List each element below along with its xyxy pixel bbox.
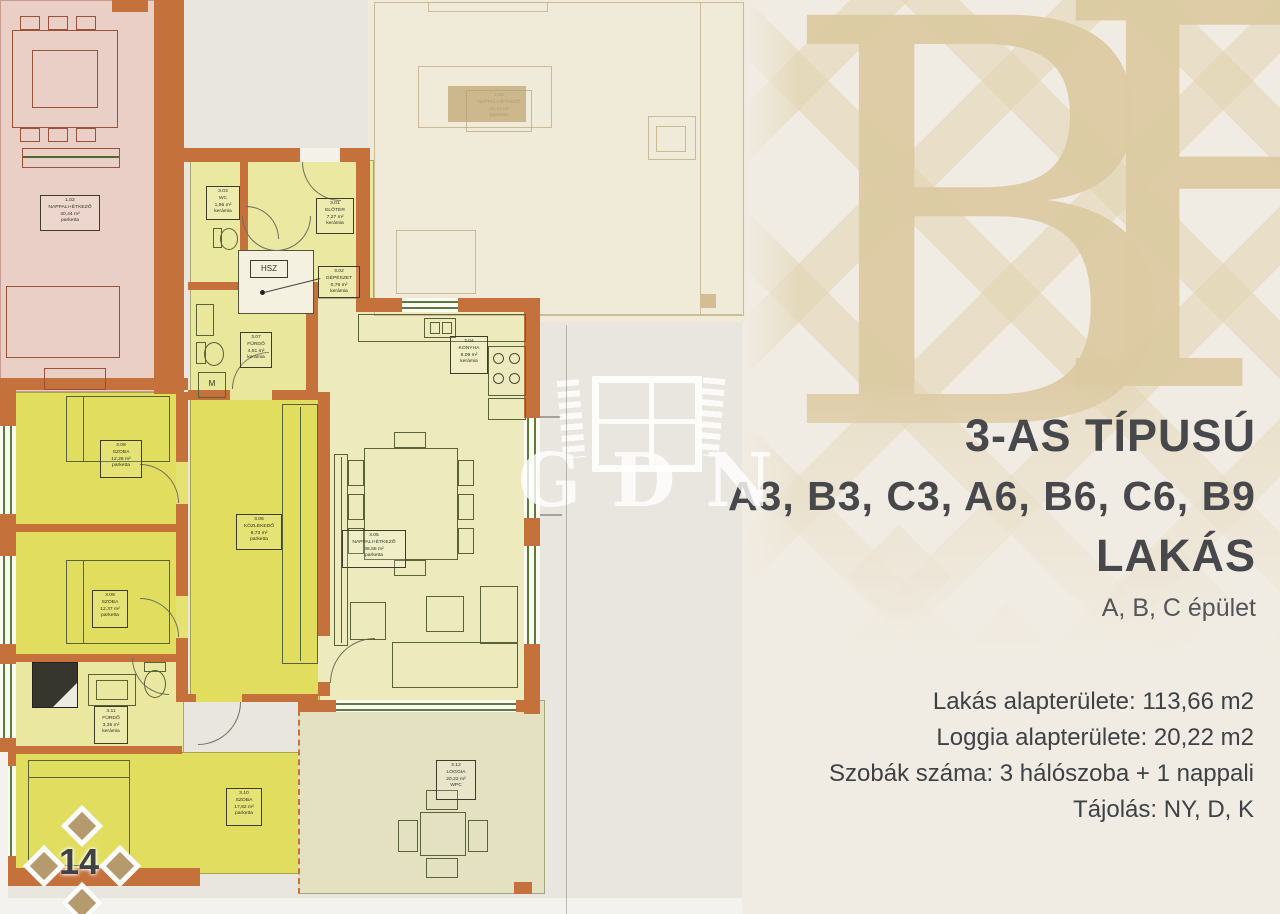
- room-label: 3.05NAPPALI+ÉTKEZŐ36,55 m²parketta: [342, 530, 406, 568]
- chair: [20, 128, 40, 142]
- chair: [458, 528, 474, 554]
- window-mullion: [599, 419, 695, 424]
- room-label: 3.02GÉPÉSZET0,76 m²kerámia: [318, 266, 360, 298]
- burner-icon: [493, 353, 504, 364]
- room-label: 3.01ELŐTÉR7,27 m²kerámia: [316, 198, 354, 234]
- chair: [20, 16, 40, 30]
- window-sill-line: [540, 416, 562, 418]
- sink-basin: [430, 322, 440, 334]
- sink-basin: [96, 680, 128, 700]
- room-label: 3.06KÖZLEKEDŐ8,73 m²parketta: [236, 514, 282, 550]
- bathroom-sink: [196, 304, 214, 336]
- burner-icon: [509, 353, 520, 364]
- armchair: [350, 602, 386, 640]
- faded-wall-line: [700, 2, 701, 314]
- gdn-watermark: GDN: [518, 438, 803, 524]
- wall-segment: [112, 0, 148, 12]
- loggia-sliding-door: [336, 700, 516, 712]
- shower: [32, 662, 78, 708]
- chair: [348, 460, 364, 486]
- adjacent-sofa: [6, 286, 120, 358]
- bedroom2-window: [0, 556, 16, 644]
- cooktop: [488, 346, 526, 396]
- room-loggia: [298, 700, 545, 894]
- page-margin: [0, 898, 742, 914]
- chair: [426, 858, 458, 878]
- room-label: 3.12LOGGIA20,22 m²WPC: [436, 760, 476, 800]
- door-gap: [196, 694, 242, 702]
- chair: [48, 16, 68, 30]
- page-margin: [0, 752, 8, 914]
- detail-loggia-area: Loggia alapterülete: 20,22 m2: [634, 720, 1254, 756]
- chair: [48, 128, 68, 142]
- loggia-table: [420, 812, 466, 856]
- detail-rooms-count: Szobák száma: 3 hálószoba + 1 nappali: [634, 756, 1254, 792]
- faded-room-label: 2.02 NAPPALI+ÉTKEZŐ 42,43 m² parketta: [466, 90, 532, 132]
- chair: [458, 494, 474, 520]
- sofa-corner: [480, 586, 518, 644]
- type-label: LAKÁS: [576, 526, 1256, 586]
- adjacent-cabinet: [44, 368, 106, 390]
- faded-room-box: [656, 126, 686, 152]
- room-label: 3.08SZOBA12,26 m²parketta: [100, 440, 142, 478]
- diamond-ornament: [61, 882, 103, 914]
- page-number: 14: [59, 841, 99, 883]
- wall-segment: [184, 148, 370, 162]
- sofa: [392, 642, 518, 688]
- door-arc: [198, 702, 241, 745]
- chair: [76, 16, 96, 30]
- brochure-page: B F 3-AS TÍPUSÚ A3, B3, C3, A6, B6, C6, …: [0, 0, 1280, 914]
- toilet-icon: [144, 670, 166, 698]
- door-gap: [300, 148, 340, 162]
- pillow-line: [83, 397, 84, 461]
- washing-machine: M: [198, 372, 226, 398]
- adjacent-room-label: 1.02 NAPPALI+ÉTKEZŐ 40,44 m² parketta: [40, 195, 100, 231]
- room-label: 3.10SZOBA17,82 m²parketta: [226, 788, 262, 826]
- faded-wall-block: [700, 294, 716, 308]
- adjacent-dining-table-inner: [32, 50, 98, 108]
- wall-segment: [154, 0, 184, 394]
- chair: [394, 432, 426, 448]
- wall-segment: [8, 746, 182, 754]
- chair: [398, 820, 418, 852]
- chair: [458, 460, 474, 486]
- bathroom-window: [0, 664, 16, 738]
- room-label: 3.11FÜRDŐ3,35 m²kerámia: [94, 706, 128, 744]
- faded-table: [396, 230, 476, 294]
- room-label: 3.04KONYHA8,09 m²kerámia: [450, 336, 488, 374]
- room-label: 3.09SZOBA12,37 m²parketta: [92, 590, 128, 628]
- buildings-label: A, B, C épület: [576, 586, 1256, 630]
- pillow-line: [29, 777, 129, 778]
- door-gap: [318, 636, 330, 682]
- fridge: [488, 398, 526, 420]
- door-gap: [230, 390, 272, 400]
- adjacent-sideboard: [22, 148, 120, 168]
- faded-window: [428, 2, 548, 12]
- page-crease-line: [566, 325, 567, 914]
- living-window: [524, 546, 540, 644]
- coffee-table: [426, 596, 464, 632]
- toilet-icon: [220, 228, 238, 250]
- burner-icon: [493, 373, 504, 384]
- wall-segment: [8, 524, 182, 532]
- shaft-label: HSZ: [250, 260, 288, 278]
- shower-tray: [53, 683, 77, 707]
- bedroom1-window: [0, 426, 16, 514]
- wall-segment: [176, 392, 188, 702]
- kitchen-window: [402, 298, 458, 312]
- chair: [76, 128, 96, 142]
- room-label: 3.03WC1,95 m²kerámia: [206, 186, 240, 220]
- wardrobe: [282, 404, 318, 664]
- room-label: 3.07FÜRDŐ4,51 m²kerámia: [240, 332, 272, 368]
- wall-segment: [514, 882, 532, 894]
- chair: [348, 494, 364, 520]
- wardrobe-line: [300, 407, 301, 661]
- chair: [468, 820, 488, 852]
- pillow-line: [83, 561, 84, 643]
- detail-apartment-area: Lakás alapterülete: 113,66 m2: [634, 684, 1254, 720]
- apartment-details: Lakás alapterülete: 113,66 m2 Loggia ala…: [634, 684, 1254, 828]
- toilet-icon: [204, 342, 224, 366]
- burner-icon: [509, 373, 520, 384]
- sink-basin: [442, 322, 452, 334]
- detail-orientation: Tájolás: NY, D, K: [634, 792, 1254, 828]
